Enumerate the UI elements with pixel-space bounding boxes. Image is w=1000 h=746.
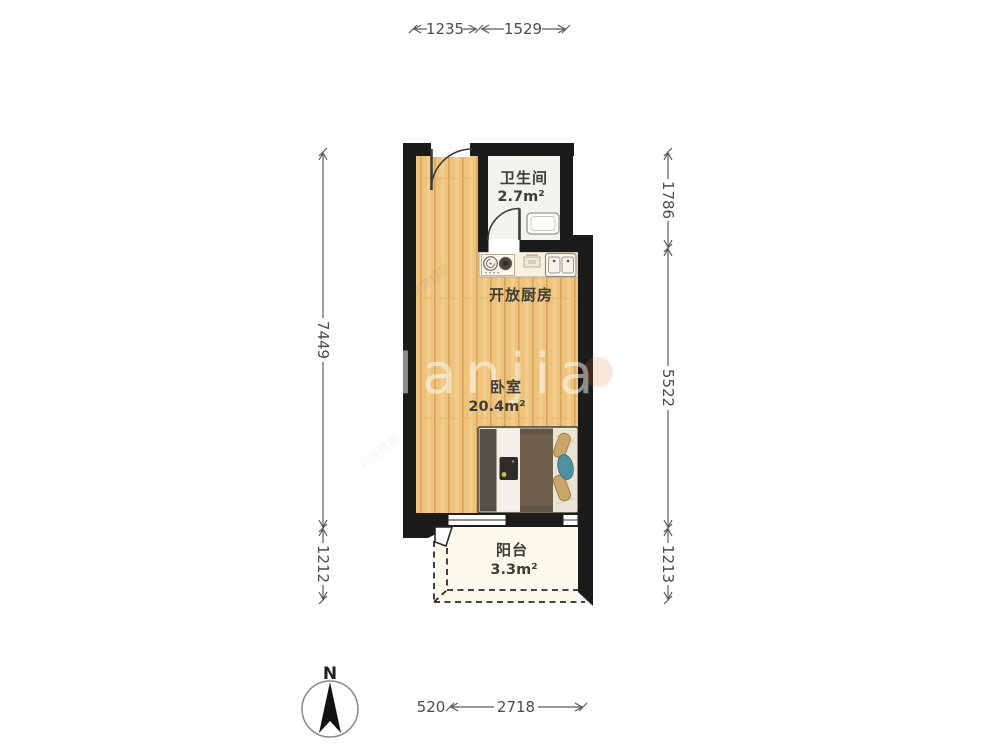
bathroom-door-opening xyxy=(489,239,520,254)
dim-left-lower-value: 1212 xyxy=(314,545,332,583)
bed-duvet xyxy=(520,429,553,513)
bedroom-label: 卧室 xyxy=(490,378,522,396)
tray-dot xyxy=(502,472,507,477)
dim-bottom-main-value: 2718 xyxy=(497,698,535,716)
floorplan-drawing: lanjia 贝壳找房 贝壳找房 卫生间 2.7m² 开放厨房 卧室 20.4m… xyxy=(0,0,1000,746)
bathroom-label: 卫生间 xyxy=(500,169,548,187)
dim-bottom-offset-value: 520 xyxy=(417,698,446,716)
bed-tray-icon xyxy=(500,457,519,480)
kitchen-counter xyxy=(479,252,578,277)
balcony-area: 3.3m² xyxy=(490,562,537,578)
wall-top xyxy=(403,143,574,156)
balcony-label: 阳台 xyxy=(496,541,528,559)
dim-left-upper-value: 7449 xyxy=(314,321,332,359)
duvet-fold-bottom xyxy=(520,506,553,512)
bed-foot-throw xyxy=(480,429,497,512)
floorplan-page: lanjia 贝壳找房 贝壳找房 卫生间 2.7m² 开放厨房 卧室 20.4m… xyxy=(0,0,1000,746)
tray-dot-2 xyxy=(512,460,514,462)
bathroom-area: 2.7m² xyxy=(497,189,544,205)
wall-bathroom-left xyxy=(478,156,488,240)
watermark-brand: lanjia xyxy=(398,342,603,407)
wall-right xyxy=(578,235,593,606)
dim-right-lower-value: 1213 xyxy=(659,545,677,583)
watermark-logo xyxy=(583,357,613,387)
dim-top-right-value: 1529 xyxy=(504,20,542,38)
dim-top-left-value: 1235 xyxy=(426,20,464,38)
bedroom-area: 20.4m² xyxy=(468,399,525,415)
dim-right-middle-value: 5522 xyxy=(659,369,677,407)
dim-right-upper-value: 1786 xyxy=(659,181,677,219)
wall-left xyxy=(403,143,416,527)
sink-icon xyxy=(546,254,577,277)
duvet-fold-top xyxy=(520,429,553,435)
washbasin-icon xyxy=(527,213,559,234)
wall-bathroom-right xyxy=(560,143,573,240)
kitchen-label: 开放厨房 xyxy=(489,286,553,304)
bed xyxy=(478,427,578,513)
